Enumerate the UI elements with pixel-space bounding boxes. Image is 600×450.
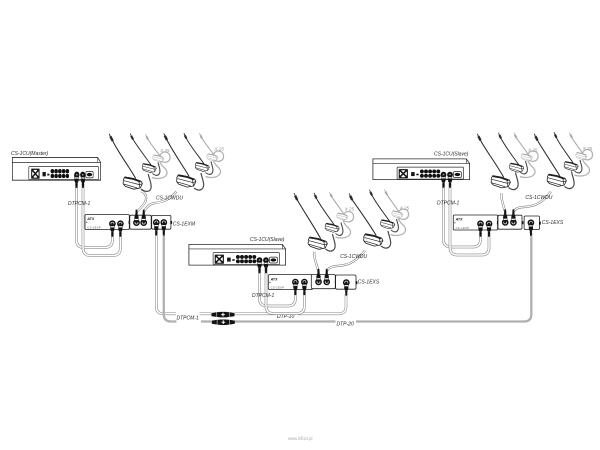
svg-text:CS-1EXM: CS-1EXM <box>173 222 196 228</box>
svg-text:X 25: X 25 <box>399 205 410 210</box>
svg-text:CS-1CU(Slave): CS-1CU(Slave) <box>250 237 285 243</box>
svg-text:ATX: ATX <box>270 277 279 281</box>
svg-text:ATX: ATX <box>455 218 464 222</box>
svg-text:CS-1CU(Slave): CS-1CU(Slave) <box>434 152 469 158</box>
svg-text:CS-1EXP: CS-1EXP <box>87 225 101 229</box>
svg-text:DTPCM-1: DTPCM-1 <box>177 316 199 322</box>
svg-text:DTPCM-1: DTPCM-1 <box>252 293 274 299</box>
svg-text:CS-1CWDU: CS-1CWDU <box>525 195 552 201</box>
svg-text:X 25: X 25 <box>344 206 355 211</box>
svg-text:CS-1CWDU: CS-1CWDU <box>156 195 183 201</box>
svg-text:ATX: ATX <box>86 217 95 221</box>
svg-text:CS-1CWDU: CS-1CWDU <box>340 254 367 260</box>
svg-text:X 25: X 25 <box>214 147 225 152</box>
svg-text:DTP-20: DTP-20 <box>337 321 354 327</box>
svg-text:DTPCM-1: DTPCM-1 <box>437 201 459 207</box>
svg-text:CS-1EXS: CS-1EXS <box>542 220 564 226</box>
svg-text:X 25: X 25 <box>159 148 170 153</box>
svg-text:X 25: X 25 <box>582 146 593 151</box>
svg-text:CS-1EXP: CS-1EXP <box>456 226 470 230</box>
svg-text:CS-1CU(Master): CS-1CU(Master) <box>11 151 49 157</box>
svg-text:X 25: X 25 <box>527 148 538 153</box>
svg-text:CS-1EXP: CS-1EXP <box>271 286 285 290</box>
svg-text:www.hifi24.pl: www.hifi24.pl <box>288 436 313 441</box>
svg-text:DTPCM-1: DTPCM-1 <box>68 201 90 207</box>
svg-text:CS-1EXS: CS-1EXS <box>358 280 380 286</box>
